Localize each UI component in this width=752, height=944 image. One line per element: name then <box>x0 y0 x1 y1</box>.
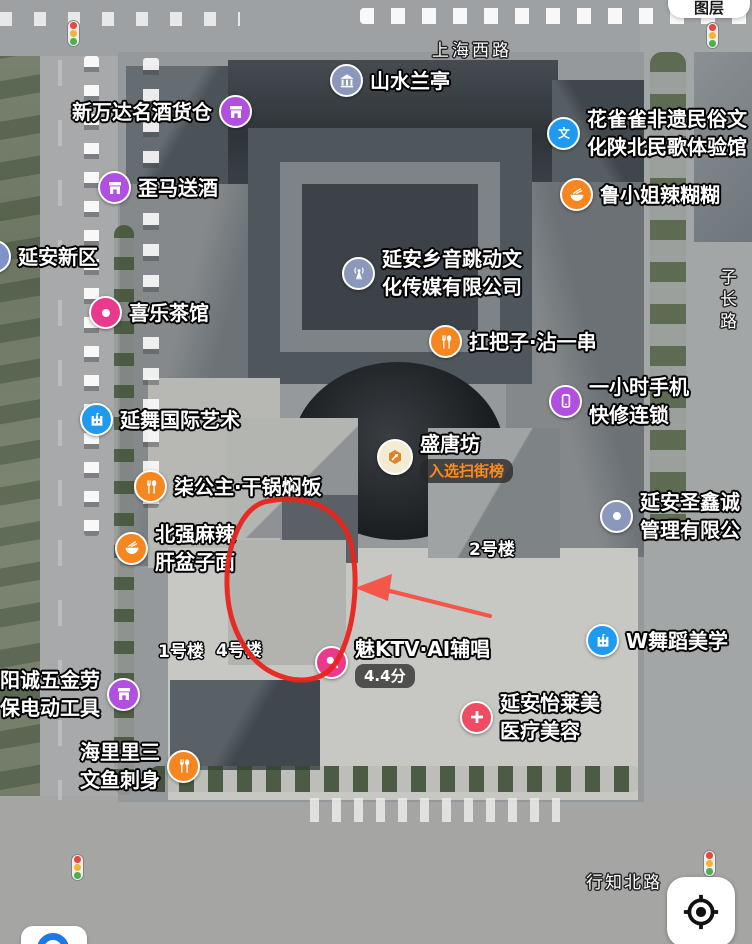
traffic-light-icon <box>67 20 80 47</box>
poi-label: 喜乐茶馆 <box>129 300 209 326</box>
poi-yilaimei-medical[interactable]: 延安怡莱美 医疗美容 <box>460 690 600 744</box>
shop-icon <box>107 678 140 711</box>
pavilion-icon <box>330 64 363 97</box>
art-venue-icon <box>586 624 619 657</box>
poi-label: 肝盆子面 <box>155 549 235 575</box>
bowl-icon <box>115 532 148 565</box>
map-logo-partial[interactable] <box>21 926 87 944</box>
poi-label: 海里里三 <box>80 739 160 765</box>
poi-huaqueque[interactable]: 文 花雀雀非遗民俗文 化陕北民歌体验馆 <box>547 106 747 160</box>
map-terrain <box>0 0 40 860</box>
poi-xile-teahouse[interactable]: 喜乐茶馆 <box>89 296 209 329</box>
poi-label: 医疗美容 <box>500 718 580 744</box>
poi-mei-ktv[interactable]: 魅KTV·AI辅唱 4.4分 <box>315 636 490 688</box>
building-label-2: 2号楼 <box>469 535 515 560</box>
traffic-light-icon <box>71 854 84 881</box>
street-rank-badge: 入选扫街榜 <box>420 459 513 483</box>
poi-hailili-sashimi[interactable]: 海里里三 文鱼刺身 <box>80 739 200 793</box>
poi-label: 快修连锁 <box>589 402 669 428</box>
poi-label: 一小时手机 <box>589 374 689 400</box>
culture-wen-icon: 文 <box>547 117 580 150</box>
district-icon <box>0 240 11 273</box>
poi-label: 延安新区 <box>18 244 98 270</box>
medical-plus-icon <box>460 701 493 734</box>
poi-label: 延安乡音跳动文 <box>382 246 522 272</box>
traffic-light-icon <box>706 22 719 49</box>
poi-label: 魅KTV·AI辅唱 <box>355 636 490 662</box>
utensils-icon <box>167 750 200 783</box>
map-crosswalk <box>310 798 560 822</box>
poi-beiqiang-mala[interactable]: 北强麻辣 肝盆子面 <box>115 521 235 575</box>
road-label-xingzhi-north: 行知北路 <box>586 868 662 893</box>
poi-label: 阳诚五金劳 <box>0 667 100 693</box>
poi-label: 山水兰亭 <box>370 68 450 94</box>
building-label-1: 1号楼 <box>158 637 204 662</box>
layers-button-label: 图层 <box>694 0 724 17</box>
map-cars <box>0 12 240 26</box>
poi-label: 扛把子·沾一串 <box>469 329 597 355</box>
poi-label: 盛唐坊 <box>420 431 480 457</box>
poi-yangcheng-tools[interactable]: 阳诚五金劳 保电动工具 <box>0 667 140 721</box>
dot-icon <box>600 500 633 533</box>
shop-icon <box>219 95 252 128</box>
poi-yanan-xinqu[interactable]: 延安新区 <box>0 240 98 273</box>
poi-label: 歪马送酒 <box>138 175 218 201</box>
poi-label: 鲁小姐辣糊糊 <box>600 182 720 208</box>
mic-icon <box>315 646 348 679</box>
poi-label: 花雀雀非遗民俗文 <box>587 106 747 132</box>
utensils-icon <box>429 325 462 358</box>
poi-label: 延安圣鑫诚 <box>640 489 740 515</box>
poi-label: 保电动工具 <box>0 695 100 721</box>
art-venue-icon <box>80 403 113 436</box>
poi-luxiaojie[interactable]: 鲁小姐辣糊糊 <box>560 178 720 211</box>
utensils-icon <box>134 470 167 503</box>
poi-w-dance[interactable]: W舞蹈美学 <box>586 624 728 657</box>
poi-label: 化传媒有限公司 <box>382 274 522 300</box>
poi-kangbazi[interactable]: 扛把子·沾一串 <box>429 325 597 358</box>
poi-label: 管理有限公 <box>640 517 740 543</box>
poi-shengtangfang[interactable]: 盛唐坊 入选扫街榜 <box>377 431 513 483</box>
poi-xinwanda[interactable]: 新万达名酒货仓 <box>72 95 252 128</box>
poi-xiangyin-media[interactable]: 延安乡音跳动文 化传媒有限公司 <box>342 246 522 300</box>
poi-label: 延舞国际艺术 <box>120 407 240 433</box>
dot-icon <box>89 296 122 329</box>
poi-shengxincheng[interactable]: 延安圣鑫诚 管理有限公 <box>600 489 740 543</box>
building-label-4: 4号楼 <box>216 636 262 661</box>
logo-arc-icon <box>37 933 69 944</box>
poi-label: 北强麻辣 <box>155 521 235 547</box>
poi-label: 化陕北民歌体验馆 <box>587 134 747 160</box>
poi-label: 延安怡莱美 <box>500 690 600 716</box>
map-hedge <box>150 766 640 792</box>
traffic-light-icon <box>703 850 716 877</box>
poi-label: 新万达名酒货仓 <box>72 99 212 125</box>
poi-label: W舞蹈美学 <box>626 628 728 654</box>
hex-arrow-icon <box>377 439 413 475</box>
poi-shanshuilanting[interactable]: 山水兰亭 <box>330 64 450 97</box>
radio-tower-icon <box>342 257 375 290</box>
phone-icon <box>549 385 582 418</box>
bowl-icon <box>560 178 593 211</box>
map-viewport: 上海西路 子长路 行知北路 1号楼 4号楼 2号楼 山水兰亭 新万达名酒货仓 文… <box>0 0 752 944</box>
locate-target-icon <box>680 891 722 933</box>
shop-icon <box>98 171 131 204</box>
layers-button[interactable]: 图层 <box>668 0 750 18</box>
poi-phone-repair[interactable]: 一小时手机 快修连锁 <box>549 374 689 428</box>
poi-label: 文鱼刺身 <box>80 767 160 793</box>
poi-yanwu-art[interactable]: 延舞国际艺术 <box>80 403 240 436</box>
svg-text:文: 文 <box>557 125 570 140</box>
road-label-shanghai-west: 上海西路 <box>432 36 512 61</box>
poi-waima[interactable]: 歪马送酒 <box>98 171 218 204</box>
poi-qigongzhu[interactable]: 柒公主·干锅焖饭 <box>134 470 322 503</box>
poi-label: 柒公主·干锅焖饭 <box>174 474 322 500</box>
rating-badge: 4.4分 <box>355 664 415 688</box>
road-label-zichang: 子长路 <box>714 268 739 334</box>
locate-button[interactable] <box>667 877 735 944</box>
